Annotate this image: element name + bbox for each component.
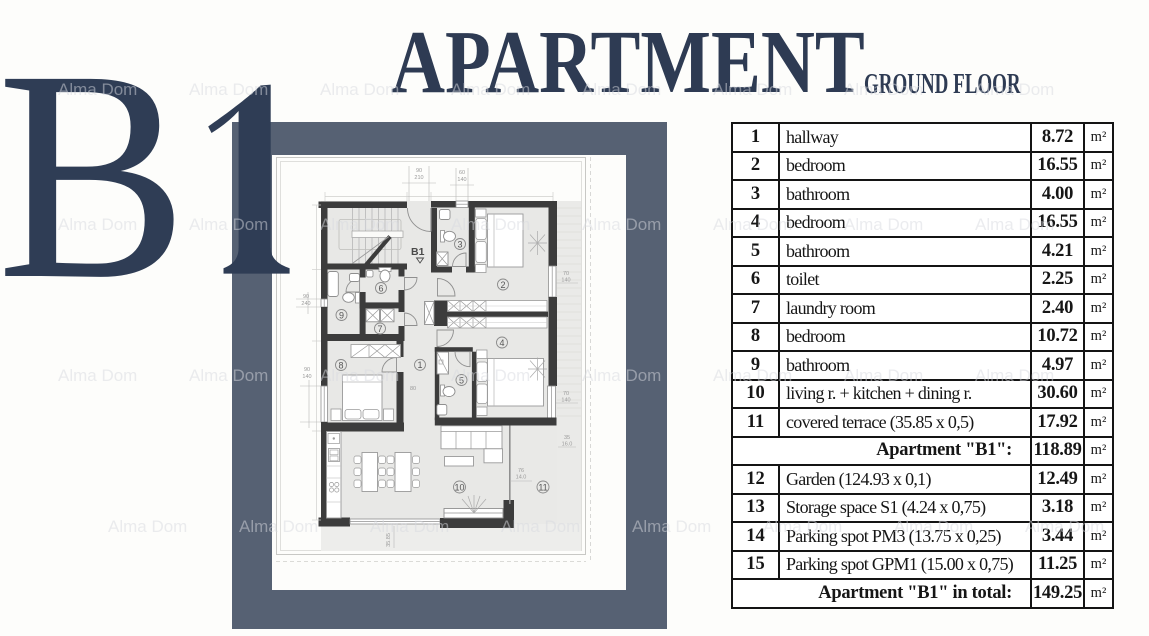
svg-text:1: 1: [417, 360, 422, 370]
svg-text:6: 6: [378, 283, 383, 293]
svg-text:70: 70: [563, 391, 569, 397]
svg-text:140: 140: [302, 374, 311, 380]
svg-text:9: 9: [339, 310, 344, 320]
svg-text:B1: B1: [411, 246, 425, 258]
svg-text:210: 210: [414, 175, 423, 181]
svg-text:70: 70: [563, 271, 569, 277]
svg-text:90: 90: [416, 168, 422, 174]
svg-text:90: 90: [303, 294, 309, 300]
svg-text:140: 140: [561, 398, 570, 404]
svg-text:10: 10: [454, 482, 464, 492]
svg-text:240: 240: [301, 301, 310, 307]
svg-text:60: 60: [459, 170, 465, 176]
svg-text:76: 76: [518, 468, 524, 474]
svg-text:140: 140: [457, 177, 466, 183]
svg-text:90: 90: [304, 367, 310, 373]
svg-text:80: 80: [410, 386, 416, 392]
svg-text:140: 140: [561, 278, 570, 284]
svg-text:4: 4: [499, 338, 504, 348]
svg-text:16.0: 16.0: [562, 442, 573, 448]
svg-text:7: 7: [377, 324, 382, 334]
svg-text:2: 2: [500, 280, 505, 290]
svg-text:35: 35: [564, 435, 570, 441]
svg-text:11: 11: [538, 482, 547, 492]
svg-text:14.0: 14.0: [516, 475, 527, 481]
svg-text:3: 3: [457, 239, 462, 249]
